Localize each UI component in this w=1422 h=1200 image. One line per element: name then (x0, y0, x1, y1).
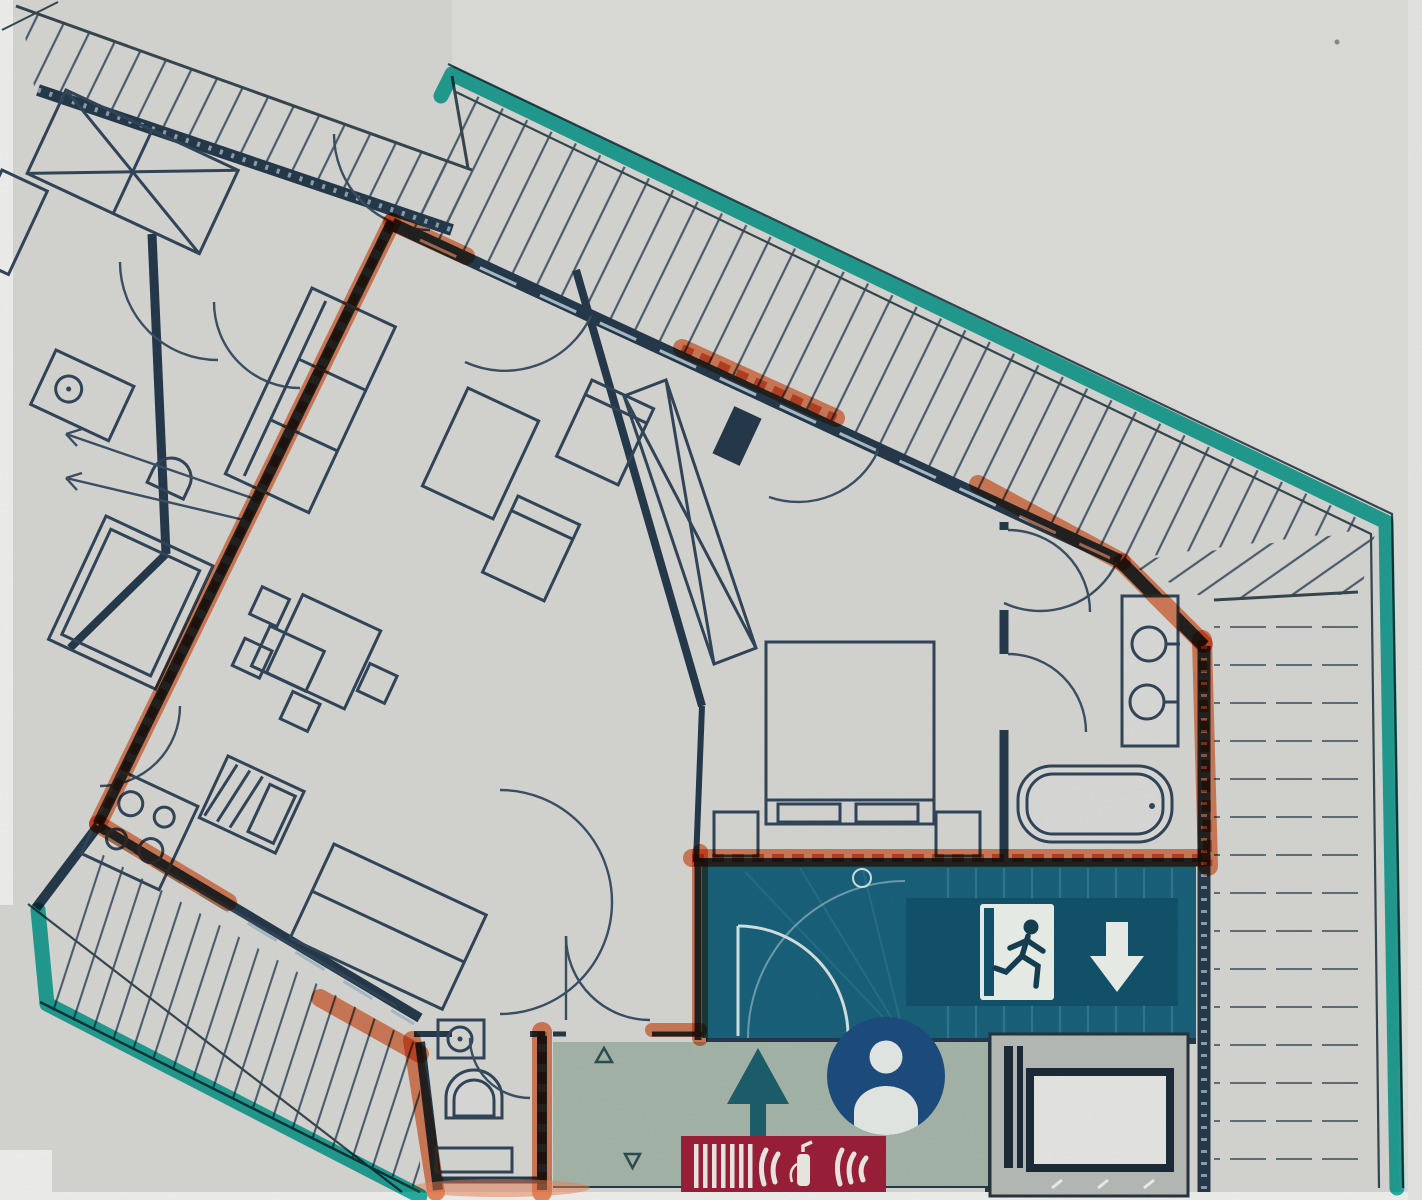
floor-plan-scan (0, 0, 1422, 1200)
floor-plan-drawing (0, 0, 1422, 1200)
scan-grain (0, 0, 1422, 1200)
